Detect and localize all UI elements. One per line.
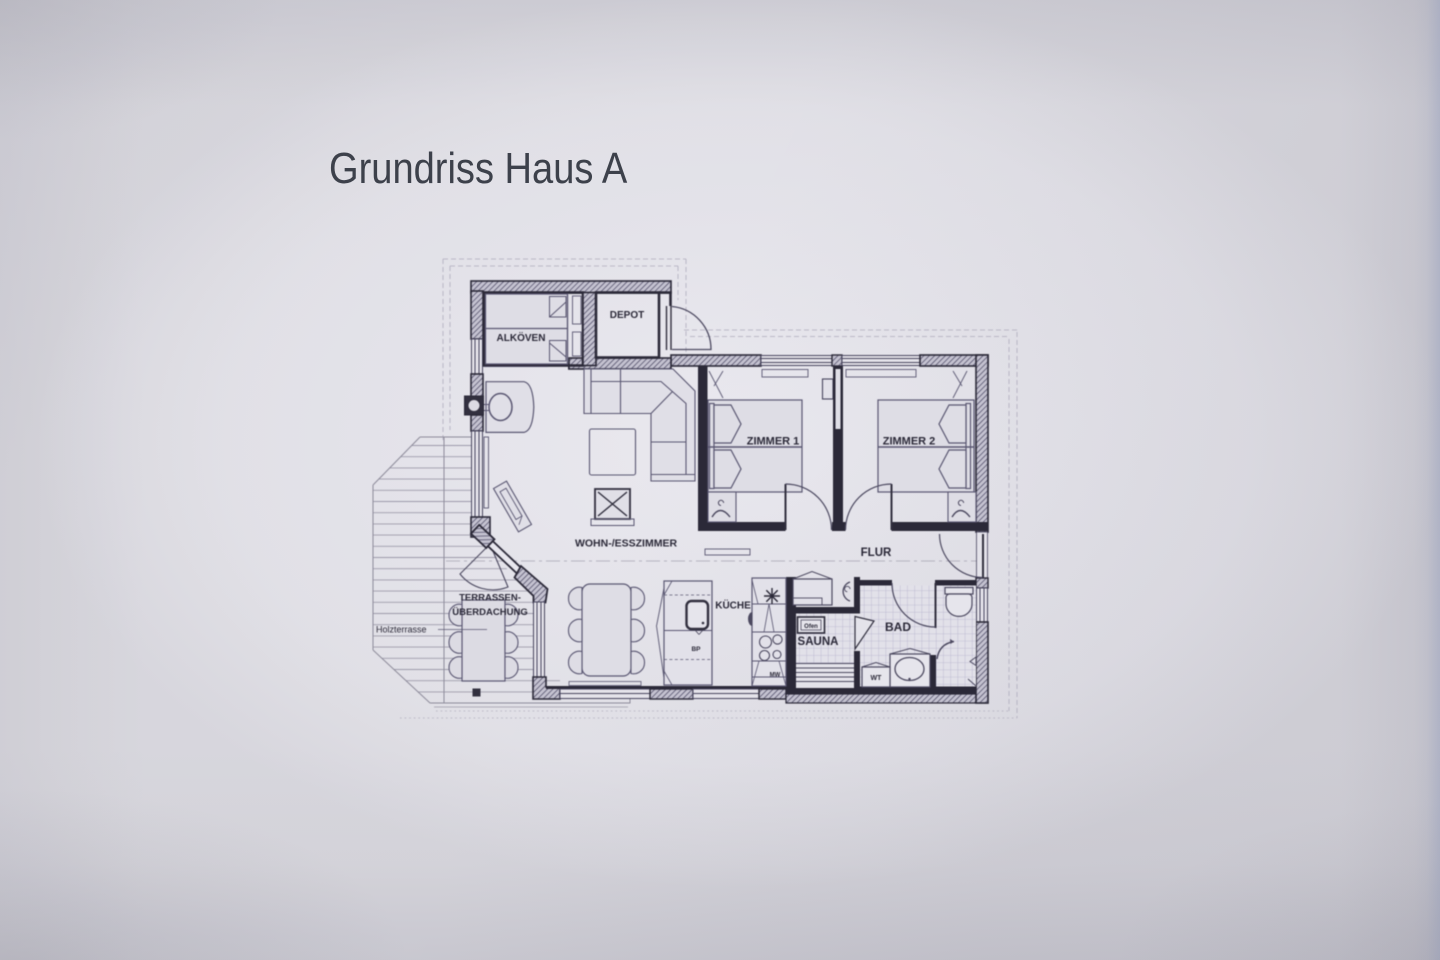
svg-text:Holzterrasse: Holzterrasse bbox=[376, 625, 427, 635]
svg-text:MW: MW bbox=[770, 673, 781, 679]
svg-text:Ofen: Ofen bbox=[804, 624, 818, 630]
svg-text:SAUNA: SAUNA bbox=[798, 636, 839, 648]
svg-text:BP: BP bbox=[691, 646, 701, 653]
svg-text:FLUR: FLUR bbox=[861, 547, 892, 559]
svg-text:KÜCHE: KÜCHE bbox=[715, 599, 751, 612]
svg-text:ÜBERDACHUNG: ÜBERDACHUNG bbox=[452, 607, 527, 618]
svg-text:ALKÖVEN: ALKÖVEN bbox=[497, 331, 546, 344]
svg-text:ZIMMER 2: ZIMMER 2 bbox=[883, 436, 936, 448]
svg-text:BAD: BAD bbox=[885, 620, 911, 634]
svg-text:ZIMMER 1: ZIMMER 1 bbox=[747, 436, 800, 448]
svg-text:WT: WT bbox=[871, 675, 883, 682]
svg-text:WOHN-/ESSZIMMER: WOHN-/ESSZIMMER bbox=[575, 538, 677, 550]
svg-text:TERRASSEN-: TERRASSEN- bbox=[459, 593, 521, 604]
svg-text:DEPOT: DEPOT bbox=[610, 310, 644, 321]
